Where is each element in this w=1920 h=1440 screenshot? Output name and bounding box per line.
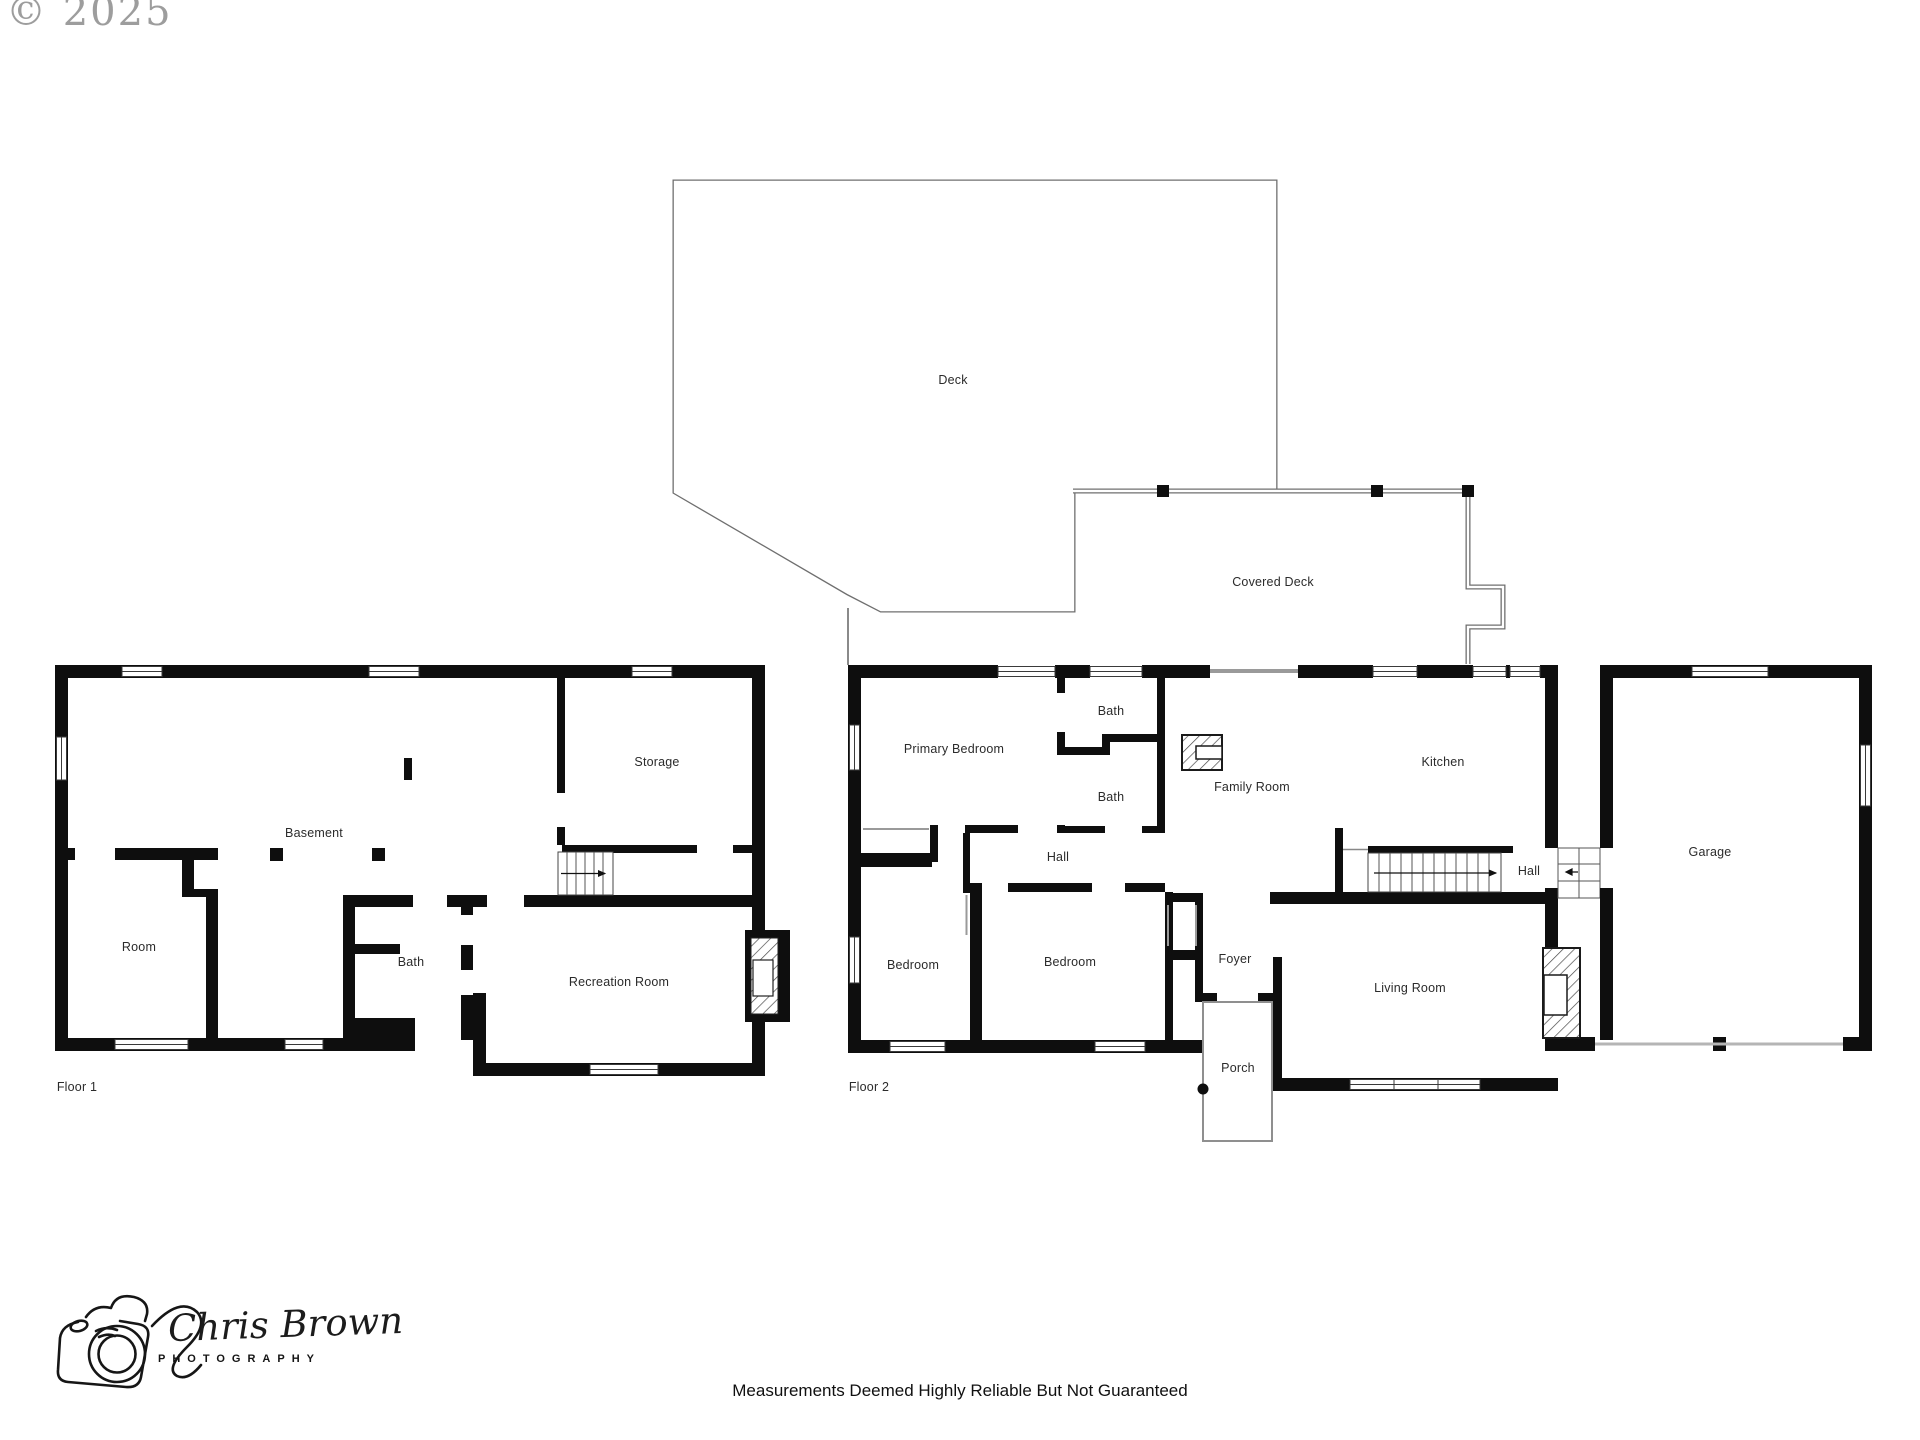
floor2-windows: [850, 667, 1871, 1090]
floor-plan-drawing: [0, 0, 1920, 1440]
floor1-fireplace: [751, 938, 778, 1014]
copyright-watermark: © 2025: [6, 0, 173, 35]
porch-dot: [1198, 1084, 1209, 1095]
garage-walls: [1580, 665, 1872, 1051]
floor2-stairs: [1343, 850, 1501, 893]
logo-name: Chris Brown: [167, 1299, 403, 1350]
porch-outline: [1198, 1002, 1273, 1141]
deck-outline: [675, 182, 1275, 665]
measurement-disclaimer: Measurements Deemed Highly Reliable But …: [0, 1381, 1920, 1401]
logo-subtitle: PHOTOGRAPHY: [158, 1353, 321, 1365]
covered-deck-outline: [1073, 485, 1503, 664]
garage-steps: [1558, 848, 1600, 898]
garage-window-overlay: [1692, 667, 1871, 807]
living-room-fireplace: [1543, 948, 1580, 1038]
family-room-fireplace: [1182, 735, 1222, 770]
floor-plan-page: { "watermark": { "text": "© 2025", "colo…: [0, 0, 1920, 1440]
sliding-door-opening: [1210, 669, 1298, 673]
floor1-stairs: [558, 852, 613, 895]
floor1-walls: [55, 665, 790, 1076]
floor2-window-mullions: [855, 672, 1866, 1090]
